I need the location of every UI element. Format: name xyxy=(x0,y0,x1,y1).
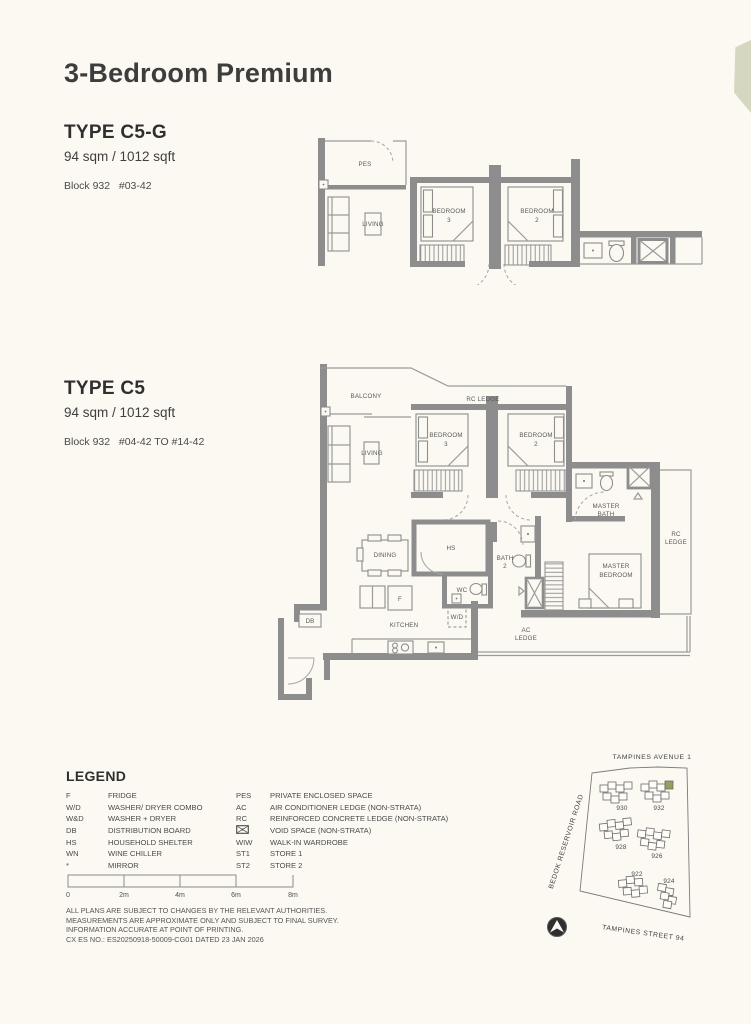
block-cluster-922 xyxy=(618,875,648,898)
road-label-tampines-street-94: TAMPINES STREET 94 xyxy=(602,924,685,942)
dining-area: DINING xyxy=(357,535,408,576)
block-cluster-930 xyxy=(600,782,632,803)
unit-type-label: TYPE C5-G xyxy=(64,122,175,144)
scale-tick: 2m xyxy=(119,892,129,899)
scale-tick: 6m xyxy=(231,892,241,899)
svg-text:LEDGE: LEDGE xyxy=(665,539,687,546)
legend-row: WNWINE CHILLER xyxy=(66,848,236,860)
block-label-932: 932 xyxy=(653,805,665,812)
toilet-icon xyxy=(609,241,624,262)
entrance: DB xyxy=(288,614,321,684)
legend-row: *MIRROR xyxy=(66,860,236,872)
door-swing-icon xyxy=(464,264,489,285)
floor-plan-c5g: PES LIVING BEDROOM 3 BEDROOM 2 xyxy=(313,133,705,285)
stove-icon xyxy=(388,641,413,654)
highlighted-block-932-unit xyxy=(665,781,673,789)
unit-area-label: 94 sqm / 1012 sqft xyxy=(64,405,204,420)
site-map: TAMPINES AVENUE 1 BEDOK RESERVOIR ROAD T… xyxy=(540,742,751,952)
road-label-tampines-avenue-1: TAMPINES AVENUE 1 xyxy=(612,754,691,761)
wd-label: W/D xyxy=(451,614,464,621)
door-swing-icon xyxy=(421,552,443,574)
legend-row: PESPRIVATE ENCLOSED SPACE xyxy=(236,790,496,802)
unit-area-label: 94 sqm / 1012 sqft xyxy=(64,149,175,164)
floor-plan-c5: BALCONY RC LEDGE LIVING BEDROOM 3 xyxy=(276,356,708,721)
legend-left-column: FFRIDGE W/DWASHER/ DRYER COMBO W&DWASHER… xyxy=(66,790,236,871)
master-bath: MASTER BATH xyxy=(575,465,651,520)
block-cluster-932 xyxy=(641,781,673,802)
legend-row: ACAIR CONDITIONER LEDGE (NON-STRATA) xyxy=(236,802,496,814)
unit-c5-heading: TYPE C5 94 sqm / 1012 sqft Block 932 #04… xyxy=(64,378,204,448)
block-label-926: 926 xyxy=(651,853,663,860)
disclaimer-line: ALL PLANS ARE SUBJECT TO CHANGES BY THE … xyxy=(66,906,339,916)
bedroom3: BEDROOM 3 xyxy=(420,187,489,285)
legend-row: VOID SPACE (NON-STRATA) xyxy=(236,825,496,837)
bath2: BATH 2 xyxy=(497,521,535,570)
living-area: LIVING xyxy=(328,197,384,251)
legend-row: W/DWASHER/ DRYER COMBO xyxy=(66,802,236,814)
bedroom2-label: BEDROOM xyxy=(520,208,553,215)
door-swing-icon xyxy=(504,264,529,285)
bedroom3: BEDROOM 3 xyxy=(414,414,468,520)
hs-label: HS xyxy=(447,545,456,552)
master-bedroom-label: MASTER xyxy=(603,563,630,570)
disclaimer-line: CX ES NO.: ES20250918-50009-CG01 DATED 2… xyxy=(66,935,339,945)
wc-area: WC xyxy=(452,584,487,604)
fridge-label: F xyxy=(398,596,402,603)
bath-strip xyxy=(580,238,702,265)
svg-text:2: 2 xyxy=(535,217,539,224)
bedroom2: BEDROOM 2 xyxy=(506,414,566,520)
void-space-icon xyxy=(236,825,270,836)
kitchen-label: KITCHEN xyxy=(390,622,419,629)
scale-tick: 4m xyxy=(175,892,185,899)
door-swing-icon xyxy=(506,495,531,520)
block-cluster-924 xyxy=(655,883,678,909)
pes-label: PES xyxy=(359,161,372,168)
svg-text:BATH: BATH xyxy=(598,511,615,518)
north-compass-icon xyxy=(548,918,567,937)
scale-tick: 8m xyxy=(288,892,298,899)
svg-text:3: 3 xyxy=(444,441,448,448)
ac-ledge-label: AC xyxy=(522,627,531,634)
rc-ledge-top-label: RC LEDGE xyxy=(466,396,499,403)
legend-row: HSHOUSEHOLD SHELTER xyxy=(66,836,236,848)
disclaimer-line: MEASUREMENTS ARE APPROXIMATE ONLY AND SU… xyxy=(66,916,339,926)
wardrobe-icon xyxy=(414,470,462,491)
unit-block-label: Block 932 #03-42 xyxy=(64,180,175,192)
living-label: LIVING xyxy=(361,450,383,457)
wardrobe-icon xyxy=(516,470,566,491)
unit-c5g-heading: TYPE C5-G 94 sqm / 1012 sqft Block 932 #… xyxy=(64,122,175,192)
disclaimer: ALL PLANS ARE SUBJECT TO CHANGES BY THE … xyxy=(66,906,339,944)
bedroom2: BEDROOM 2 xyxy=(504,187,563,285)
bath2-label: BATH xyxy=(497,555,514,562)
legend-row: WIWWALK-IN WARDROBE xyxy=(236,836,496,848)
svg-text:2: 2 xyxy=(534,441,538,448)
legend-right-column: PESPRIVATE ENCLOSED SPACE ACAIR CONDITIO… xyxy=(236,790,496,871)
unit-type-label: TYPE C5 xyxy=(64,378,204,400)
household-shelter: HS xyxy=(414,522,488,574)
scale-tick: 0 xyxy=(66,892,70,899)
wardrobe-icon xyxy=(420,245,464,265)
toilet-icon xyxy=(470,584,487,596)
legend: LEGEND FFRIDGE W/DWASHER/ DRYER COMBO W&… xyxy=(66,768,496,871)
living-label: LIVING xyxy=(362,221,384,228)
block-label-928: 928 xyxy=(615,844,627,851)
rc-ledge-right-label: RC xyxy=(671,531,681,538)
toilet-icon xyxy=(513,555,531,567)
dining-label: DINING xyxy=(374,552,397,559)
bedroom2-label: BEDROOM xyxy=(519,432,552,439)
living-area: LIVING xyxy=(328,426,383,482)
bedroom3-label: BEDROOM xyxy=(432,208,465,215)
svg-text:2: 2 xyxy=(503,563,507,570)
svg-text:BEDROOM: BEDROOM xyxy=(599,572,632,579)
legend-row: DBDISTRIBUTION BOARD xyxy=(66,825,236,837)
block-label-930: 930 xyxy=(616,805,628,812)
pes-area: PES xyxy=(319,141,406,189)
scale-bar: 0 2m 4m 6m 8m xyxy=(66,874,306,902)
bedroom3-label: BEDROOM xyxy=(429,432,462,439)
door-swing-icon xyxy=(443,495,468,520)
wc-label: WC xyxy=(457,587,468,594)
legend-row: W&DWASHER + DRYER xyxy=(66,813,236,825)
legend-row: ST2STORE 2 xyxy=(236,860,496,872)
unit-block-label: Block 932 #04-42 TO #14-42 xyxy=(64,436,204,448)
master-bedroom: MASTER BEDROOM xyxy=(579,554,641,608)
wardrobe-icon xyxy=(505,245,551,265)
balcony-label: BALCONY xyxy=(351,393,382,400)
block-cluster-928 xyxy=(599,818,633,842)
svg-text:3: 3 xyxy=(447,217,451,224)
rc-ledge-right: RC LEDGE xyxy=(660,470,691,614)
legend-row: RCREINFORCED CONCRETE LEDGE (NON-STRATA) xyxy=(236,813,496,825)
corner-tab xyxy=(734,40,751,113)
block-label-924: 924 xyxy=(663,878,675,885)
db-label: DB xyxy=(306,618,315,625)
svg-text:LEDGE: LEDGE xyxy=(515,635,537,642)
legend-row: ST1STORE 1 xyxy=(236,848,496,860)
door-swing-icon xyxy=(498,521,523,546)
brochure-page: 3-Bedroom Premium TYPE C5-G 94 sqm / 101… xyxy=(0,0,751,1024)
legend-title: LEGEND xyxy=(66,768,496,784)
road-label-bedok-reservoir-road: BEDOK RESERVOIR ROAD xyxy=(548,793,585,889)
disclaimer-line: INFORMATION ACCURATE AT POINT OF PRINTIN… xyxy=(66,925,339,935)
block-cluster-926 xyxy=(636,827,670,852)
master-bath-label: MASTER xyxy=(593,503,620,510)
toilet-icon xyxy=(600,472,613,491)
page-title: 3-Bedroom Premium xyxy=(64,58,333,89)
wardrobe-icon xyxy=(545,562,563,610)
legend-row: FFRIDGE xyxy=(66,790,236,802)
ac-ledge: AC LEDGE xyxy=(478,616,690,656)
